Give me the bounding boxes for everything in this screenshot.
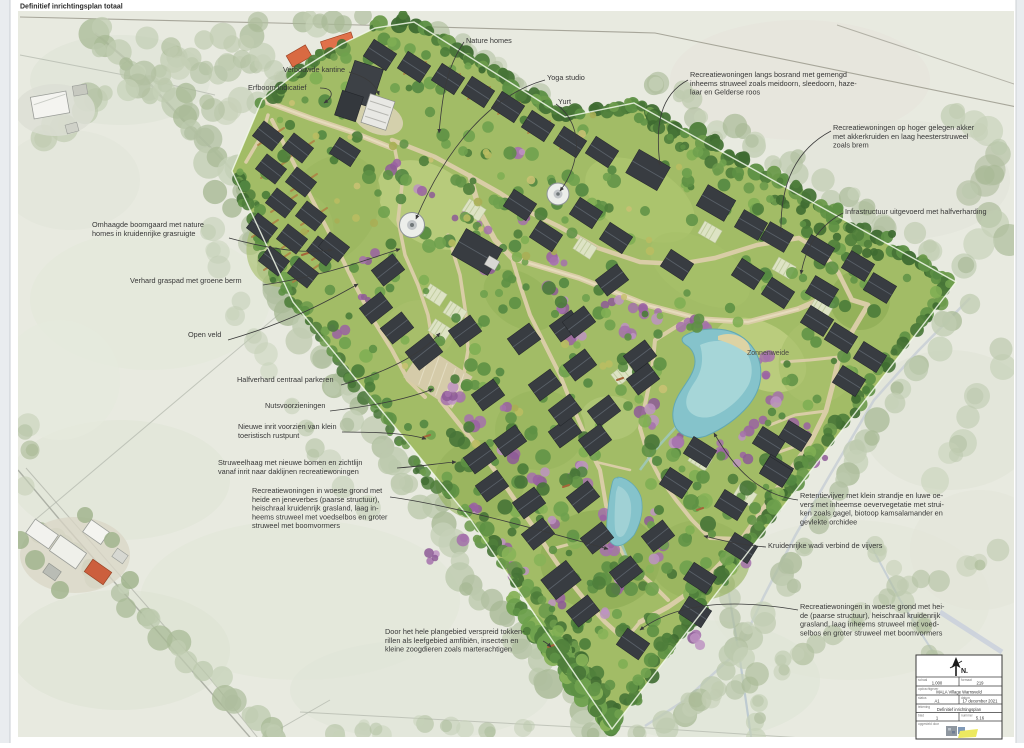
svg-text:Nature homes: Nature homes (466, 36, 512, 45)
svg-text:Definitief inrichtingsplan tot: Definitief inrichtingsplan totaal (20, 4, 123, 11)
svg-text:A1: A1 (934, 699, 940, 704)
svg-text:N.: N. (961, 668, 968, 675)
svg-text:Verbouwde kantine: Verbouwde kantine (283, 65, 345, 74)
svg-text:Struweelhaag met nieuwe bomen: Struweelhaag met nieuwe bomen en zichtli… (218, 458, 362, 476)
svg-text:Nutsvoorzieningen: Nutsvoorzieningen (265, 401, 325, 410)
svg-text:Door het hele plangebied versp: Door het hele plangebied verspreid tokke… (385, 627, 525, 654)
svg-text:MALA Village Warnsveld: MALA Village Warnsveld (936, 690, 982, 695)
svg-text:Open veld: Open veld (188, 330, 221, 339)
svg-text:formaat: formaat (961, 678, 972, 682)
svg-text:Yurt: Yurt (558, 97, 571, 106)
svg-text:tekening: tekening (918, 705, 930, 709)
svg-text:opgesteld door: opgesteld door (918, 722, 940, 726)
svg-text:17 december 2021: 17 december 2021 (963, 699, 999, 704)
svg-text:Halfverhard centraal parkeren: Halfverhard centraal parkeren (237, 375, 334, 384)
svg-text:blad: blad (918, 714, 924, 718)
svg-text:schaal: schaal (918, 678, 928, 682)
svg-text:Infrastructuur uitgevoerd met: Infrastructuur uitgevoerd met halfverhar… (845, 207, 987, 216)
svg-text:Verhard graspad met groene ber: Verhard graspad met groene berm (130, 276, 242, 285)
svg-text:5.16: 5.16 (976, 716, 985, 721)
svg-text:1.000: 1.000 (932, 681, 943, 686)
svg-text:219: 219 (977, 681, 985, 686)
svg-text:Yoga studio: Yoga studio (547, 73, 585, 82)
svg-text:nummer: nummer (961, 714, 974, 718)
svg-text:Zonnenweide: Zonnenweide (747, 350, 789, 357)
svg-text:Recreatiewoningen in woeste gr: Recreatiewoningen in woeste grond met he… (800, 602, 945, 637)
svg-text:Kruidenrijke wadi verbind de v: Kruidenrijke wadi verbind de vijvers (768, 541, 883, 550)
svg-text:status: status (918, 696, 927, 700)
svg-text:Omhaagde boomgaard met natureh: Omhaagde boomgaard met naturehomes in kr… (92, 220, 204, 238)
svg-text:Erfboom indicatief: Erfboom indicatief (248, 83, 307, 92)
svg-text:Definitief inrichtingsplan: Definitief inrichtingsplan (937, 707, 982, 712)
